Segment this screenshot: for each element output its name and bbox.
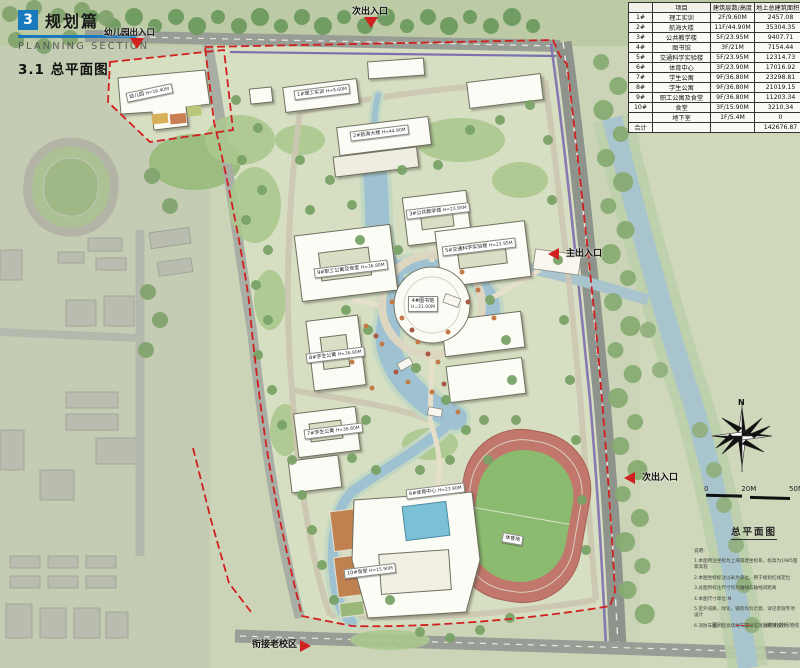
label-old-campus-link: 衔接老校区 xyxy=(252,637,297,650)
old-campus-marker xyxy=(300,640,311,652)
legend: 图例 消防扑救场地线 xyxy=(712,622,799,629)
east-secondary-entrance-marker xyxy=(624,472,635,484)
scale-tick-0: 0 xyxy=(704,485,708,493)
legend-title: 图例 xyxy=(712,622,722,629)
section-number: 3 xyxy=(18,10,38,30)
table-row: 地下室1F/5.4M0 xyxy=(629,113,800,123)
scale-tick-20: 20M xyxy=(741,485,756,493)
table-row: 10#食堂3F/15.90M3210.34 xyxy=(629,103,800,113)
note-item: 1.本图所注坐标为上海城建坐标系，标高为1985国家高程 xyxy=(694,558,798,570)
compass-points xyxy=(712,408,772,466)
swimming-pool xyxy=(402,501,450,540)
table-row: 5#交通科学实验楼5F/23.95M12314.73 xyxy=(629,53,800,63)
table-row: 8#学生公寓9F/36.80M21019.15 xyxy=(629,83,800,93)
note-item: 2.本图坐标标注以米为单位，用于规划红线定位 xyxy=(694,575,798,581)
main-entrance-marker xyxy=(548,248,559,260)
legend-item: 消防扑救场地线 xyxy=(764,622,799,629)
scale-bar: 0 20M 50M xyxy=(704,485,800,500)
compass-north-label: N xyxy=(738,398,745,407)
label-north-secondary-entrance: 次出入口 xyxy=(352,4,388,17)
notes-intro: 说明: xyxy=(694,548,798,554)
legend-fire-line-swatch xyxy=(736,625,750,626)
scale-tick-50: 50M xyxy=(789,485,800,493)
building-area-table: 项目 建筑层数/高度 地上总建筑面积（㎡） 1#理工实训2F/9.60M2457… xyxy=(628,2,800,133)
table-row: 1#理工实训2F/9.60M2457.08 xyxy=(629,13,800,23)
label-east-secondary-entrance: 次出入口 xyxy=(642,470,678,483)
notes-block: 说明: 1.本图所注坐标为上海城建坐标系，标高为1985国家高程2.本图坐标标注… xyxy=(694,548,798,633)
table-row: 4#图书馆3F/21M7154.44 xyxy=(629,43,800,53)
table-row: 合计142676.87 xyxy=(629,123,800,133)
building-gatehouse xyxy=(249,87,272,104)
table-row: 6#体育中心3F/23.90M17016.92 xyxy=(629,63,800,73)
context-stadium xyxy=(23,138,118,236)
note-item: 3.总图所标注尺寸均为轴线与轴线间距离 xyxy=(694,585,798,591)
kindergarten-entrance-marker xyxy=(130,38,144,49)
note-item: 5.室外道路、绿化、铺装均为示意，详见景观专项设计 xyxy=(694,606,798,618)
area-table-body: 1#理工实训2F/9.60M2457.082#航海大楼11F/44.90M353… xyxy=(629,13,800,133)
table-row: 9#职工公寓及食堂9F/36.80M11203.34 xyxy=(629,93,800,103)
table-row: 2#航海大楼11F/44.90M35304.35 xyxy=(629,23,800,33)
page-title: 3.1 总平面图 xyxy=(18,58,149,78)
table-row: 3#公共教学楼5F/23.95M9407.71 xyxy=(629,33,800,43)
master-plan-page: 3 规划篇 PLANNING SECTION 3.1 总平面图 项目 建筑层数/… xyxy=(0,0,800,668)
north-secondary-entrance-marker xyxy=(364,17,378,28)
notes-list: 1.本图所注坐标为上海城建坐标系，标高为1985国家高程2.本图坐标标注以米为单… xyxy=(694,558,798,629)
note-item: 4.本图尺寸单位:M xyxy=(694,596,798,602)
label-main-entrance: 主出入口 xyxy=(566,246,602,259)
table-header-row: 项目 建筑层数/高度 地上总建筑面积（㎡） xyxy=(629,3,800,13)
section-title: 规划篇 xyxy=(45,8,99,32)
compass-rose: N xyxy=(702,396,782,476)
building-north-annex xyxy=(368,58,425,79)
label-building-4: 4#图书馆H=21.00M xyxy=(408,296,438,312)
table-row: 7#学生公寓9F/36.80M23298.81 xyxy=(629,73,800,83)
plan-name: 总平面图 xyxy=(731,524,777,540)
label-kindergarten-entrance: 幼儿园出入口 xyxy=(104,26,155,38)
